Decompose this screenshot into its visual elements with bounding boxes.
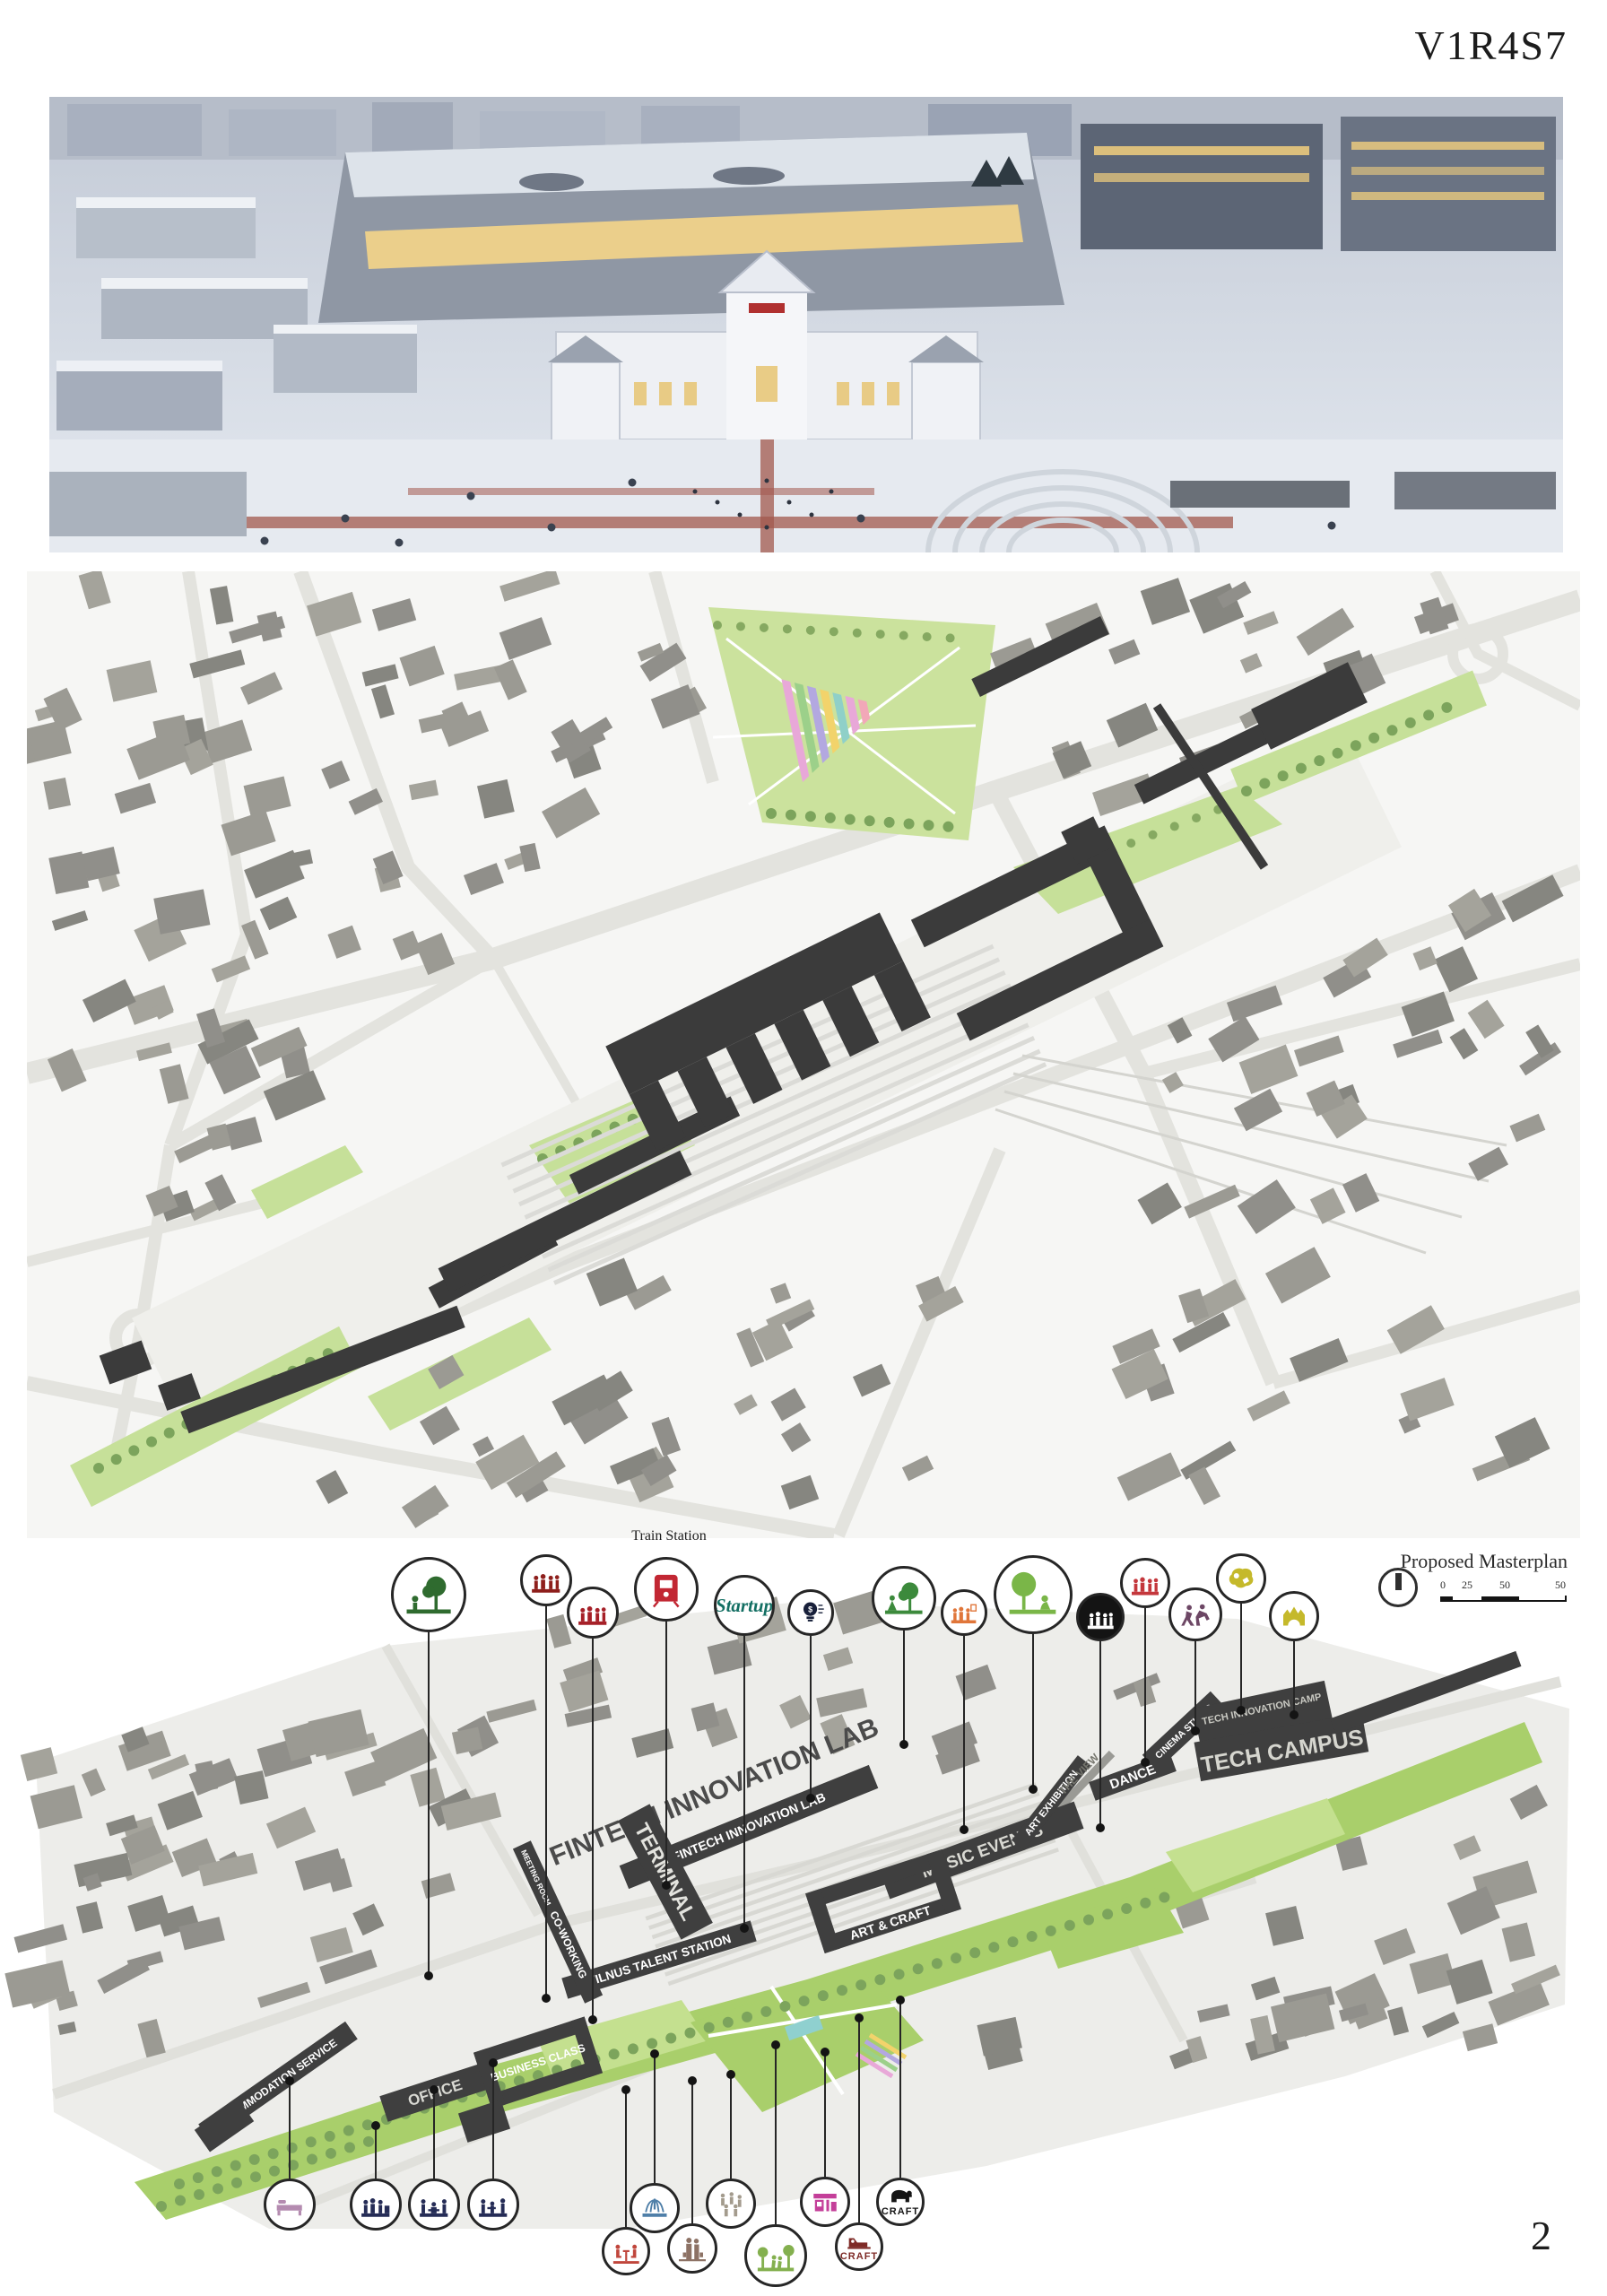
dance-figures-icon xyxy=(1168,1587,1222,1641)
masterplan-title: Proposed Masterplan xyxy=(1299,1550,1568,1573)
masterplan-drawing xyxy=(27,571,1580,1538)
bedroom-icon xyxy=(264,2179,316,2231)
market-stall-icon xyxy=(800,2177,850,2227)
market-crowd-icon xyxy=(520,1554,572,1606)
craft-label: CRAFT xyxy=(840,2252,878,2262)
office-meeting-icon xyxy=(408,2179,460,2231)
craft-sewing-icon: CRAFT xyxy=(835,2222,883,2271)
sports-group-icon xyxy=(1120,1558,1170,1608)
masterplan-panel xyxy=(27,571,1580,1538)
office-desks-icon xyxy=(467,2179,519,2231)
walking-crowd-icon xyxy=(706,2179,756,2229)
scale-tick: 50 xyxy=(1555,1578,1566,1592)
board-code: V1R4S7 xyxy=(1415,22,1568,69)
scale-tick: 25 xyxy=(1462,1578,1472,1592)
shopping-couple-icon xyxy=(667,2223,717,2274)
scale-tick: 0 xyxy=(1440,1578,1446,1592)
render-plaza xyxy=(49,439,1563,552)
winter-aerial-render-panel xyxy=(49,97,1563,552)
concert-crowd-icon xyxy=(1076,1593,1125,1641)
craft-elephant-icon: CRAFT xyxy=(876,2178,925,2226)
craft-label: CRAFT xyxy=(882,2207,919,2217)
startup-label: Startup xyxy=(716,1595,773,1617)
platform-crowd-icon xyxy=(567,1587,619,1639)
winter-render-drawing xyxy=(49,97,1563,552)
svg-text:$: $ xyxy=(809,1605,813,1614)
startup-logo-icon: Startup xyxy=(714,1575,775,1636)
render-modern-hall xyxy=(318,133,1064,323)
crown-blob-icon xyxy=(1269,1591,1319,1641)
yoga-park-icon xyxy=(872,1566,936,1631)
park-joggers-icon xyxy=(744,2224,807,2287)
community-garden-icon xyxy=(994,1555,1073,1634)
park-dog-icon xyxy=(391,1557,466,1632)
scale-bar: 0 25 50 50 xyxy=(1440,1578,1566,1602)
gallery-visitors-icon xyxy=(941,1589,987,1636)
north-arrow-icon xyxy=(1378,1568,1418,1607)
page-number: 2 xyxy=(1531,2212,1551,2259)
scale-tick: 50 xyxy=(1499,1578,1510,1592)
cafe-diners-icon xyxy=(602,2227,650,2275)
fintech-bulb-icon: $ xyxy=(787,1589,834,1636)
city-blob-icon xyxy=(1216,1553,1266,1604)
office-team-icon xyxy=(350,2179,402,2231)
train-station-callout-label: Train Station xyxy=(611,1528,727,1544)
train-station-icon xyxy=(634,1557,699,1622)
